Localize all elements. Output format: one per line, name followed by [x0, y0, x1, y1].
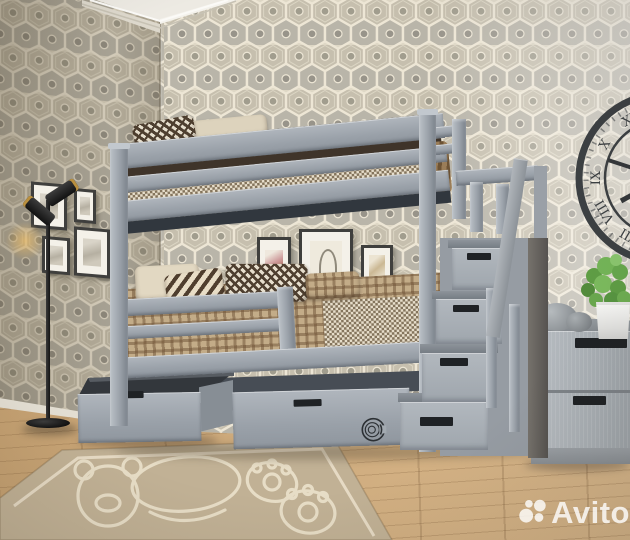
lower-bunk: [110, 279, 449, 396]
avito-watermark: Avito: [518, 492, 630, 532]
avito-wordmark: Avito: [551, 497, 630, 528]
clock-hour-hand: [621, 178, 630, 201]
clock-minute-hand: [608, 160, 630, 178]
stair-guard-slat1: [470, 182, 483, 232]
lamp-light-glow: [4, 220, 46, 262]
step2-handle: [440, 358, 468, 366]
bed-post-left-cap: [108, 143, 130, 149]
frame-art: [49, 245, 63, 265]
step3-handle: [453, 305, 479, 312]
footboard-rear-post: [452, 119, 466, 219]
frame-mat: [77, 191, 93, 220]
step2-drawer-front: [422, 353, 494, 402]
stair-baluster2: [509, 304, 520, 432]
clock-numeral-ix: IX: [589, 170, 604, 185]
dresser-drawer1-handle: [575, 338, 627, 348]
step1-drawer-front: [400, 402, 488, 450]
lamp-pole: [46, 200, 50, 428]
brand-stamp: [359, 415, 388, 444]
frame-mat: [77, 230, 107, 276]
bed-post-right-cap: [417, 109, 438, 115]
step4-handle: [467, 253, 491, 260]
lamp-base: [26, 418, 70, 428]
frame-art-beige-sketch: [369, 255, 385, 278]
underbed-drawer-handle: [293, 399, 321, 407]
plant-pot: [596, 302, 630, 339]
stair-newel-post: [528, 238, 548, 458]
frame-art: [80, 197, 90, 215]
underbed-drawer-front: [232, 388, 410, 450]
crown-molding: [0, 0, 260, 40]
step1-handle: [420, 417, 453, 426]
picture-frame-small: [74, 188, 96, 224]
roman-numeral-wall-clock: XI X IX VIII VII: [572, 88, 630, 268]
bed-post-left: [110, 146, 128, 426]
avito-logo-icon: [518, 496, 547, 528]
bedroom-photo-scene: XI X IX VIII VII: [0, 0, 630, 540]
frame-art: [83, 238, 102, 266]
clock-numeral-xi: XI: [620, 110, 630, 130]
stair-upper-post: [534, 166, 547, 242]
open-drawer-front: [78, 392, 202, 443]
dresser-drawer2-handle: [573, 396, 606, 405]
picture-frame-lower-right: [74, 226, 110, 278]
pillow-check: [305, 271, 360, 300]
